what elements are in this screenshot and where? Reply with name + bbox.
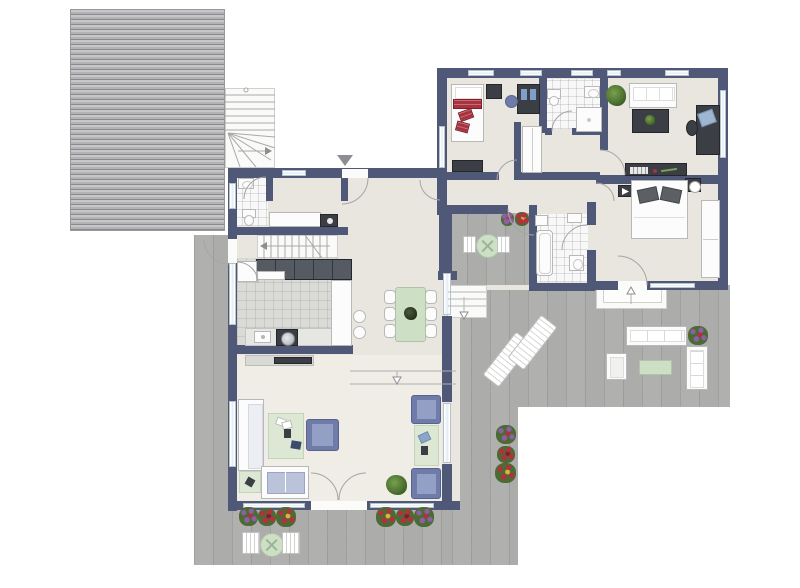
entry-door-opening: [342, 169, 368, 178]
storage-box: [630, 167, 648, 174]
sofa: [238, 399, 264, 471]
counter-peninsula: [331, 280, 352, 346]
floor-plan: [0, 0, 800, 588]
window: [520, 70, 542, 76]
entrance-marker-icon: [337, 155, 353, 166]
toilet-bowl: [244, 215, 254, 226]
flower-pot: [276, 507, 296, 527]
shelf: [486, 84, 502, 99]
window: [571, 70, 593, 76]
window: [443, 403, 451, 463]
rug: [268, 413, 304, 459]
wall: [442, 464, 452, 510]
burner: [327, 218, 333, 224]
outdoor-armchair: [606, 353, 627, 380]
wall: [529, 283, 595, 291]
flower-pot: [396, 508, 414, 526]
bathtub: [536, 230, 553, 276]
window: [229, 183, 236, 209]
window: [443, 273, 451, 315]
wall: [545, 128, 552, 135]
french-door-opening: [311, 501, 367, 510]
sink-basin: [573, 259, 583, 270]
game-box: [290, 440, 301, 450]
ottoman: [239, 471, 261, 493]
window: [665, 70, 689, 76]
window: [468, 70, 494, 76]
toy-figure: [421, 446, 428, 455]
armchair: [306, 419, 339, 451]
bar-stool: [353, 310, 366, 323]
sink: [584, 86, 600, 98]
bistro-chair: [282, 532, 300, 554]
window: [282, 170, 306, 176]
wall: [266, 177, 273, 201]
toy-figure: [284, 429, 291, 438]
lamp: [689, 181, 701, 193]
table-plant: [404, 307, 417, 320]
window: [720, 90, 726, 158]
flower-pot: [688, 326, 708, 345]
wall: [237, 227, 348, 235]
interior-staircase: [257, 235, 338, 258]
bath-shelf: [567, 213, 582, 223]
shower: [576, 107, 602, 132]
wardrobe-divider: [703, 239, 718, 240]
wall: [442, 316, 452, 402]
outdoor-sofa: [686, 346, 708, 390]
wall: [237, 345, 353, 354]
hall-appliance: [320, 214, 338, 227]
sink-basin: [588, 89, 599, 98]
lamp: [622, 188, 629, 195]
bistro-table: [260, 533, 284, 557]
outdoor-sofa: [626, 326, 687, 346]
potted-plant: [606, 85, 626, 106]
hall-counter: [269, 212, 321, 227]
monitor: [530, 89, 536, 100]
bathtub-inner: [539, 233, 551, 274]
wardrobe: [701, 200, 720, 278]
armchair-cushion: [610, 357, 624, 378]
armchair-seat: [312, 424, 333, 446]
bistro-chair: [242, 532, 260, 554]
sofa-seat: [248, 404, 263, 469]
potted-plant: [386, 475, 407, 495]
pot: [281, 332, 295, 346]
porch-inner-step: [603, 288, 662, 303]
bath-shelf: [535, 215, 548, 226]
armchair: [411, 468, 441, 499]
bistro-chair: [463, 236, 476, 253]
sideboard: [452, 160, 483, 172]
bed-blanket: [453, 99, 482, 109]
wall: [442, 230, 452, 272]
sofa-cushions: [630, 330, 685, 342]
sink: [238, 178, 254, 189]
headboard-shelf: [625, 163, 687, 176]
flower-pot: [414, 507, 434, 527]
sofa-cushions: [633, 87, 675, 101]
wall: [228, 168, 440, 178]
faucet: [261, 335, 265, 339]
desk: [517, 84, 540, 114]
terrace-steps: [447, 285, 487, 318]
desk-chair: [505, 95, 518, 108]
bar-stool: [353, 326, 366, 339]
armchair: [411, 395, 441, 424]
outdoor-table: [639, 360, 672, 375]
bed-foot-line: [634, 217, 685, 218]
carport-roof: [70, 9, 225, 231]
window: [439, 126, 445, 168]
wardrobe-divider: [532, 128, 533, 171]
flower-pot: [515, 212, 529, 226]
armchair-seat: [417, 400, 436, 419]
dining-chair: [425, 307, 437, 321]
counter: [237, 261, 257, 282]
tv: [274, 357, 312, 364]
flower-pot: [495, 463, 516, 483]
nightstand: [618, 185, 632, 197]
wall: [442, 205, 452, 233]
flower-pot: [501, 212, 514, 226]
exterior-winder-stair: [225, 88, 275, 168]
flower-pot: [376, 507, 396, 527]
flower-pot: [258, 508, 276, 526]
sink: [569, 255, 584, 271]
loveseat-seat: [267, 472, 305, 494]
window: [229, 401, 236, 467]
dining-chair: [425, 290, 437, 304]
loveseat-divider: [285, 472, 286, 492]
sofa-cushions: [690, 350, 704, 388]
island-sink: [254, 331, 271, 343]
toy-figure: [245, 477, 256, 488]
flower-pot: [239, 507, 258, 526]
flower-pot: [496, 425, 516, 444]
sink-basin: [242, 181, 253, 189]
counter-shelf: [257, 271, 285, 280]
window: [229, 263, 236, 325]
entrance-porch: [596, 287, 667, 309]
window: [650, 283, 695, 288]
dining-chair: [425, 324, 437, 338]
toilet-bowl: [549, 96, 559, 106]
bed-pillow: [455, 87, 482, 99]
wall: [587, 202, 596, 225]
armchair-seat: [417, 474, 436, 494]
wall: [539, 78, 547, 133]
monitor: [521, 89, 527, 100]
shower-drain: [587, 118, 591, 122]
wall: [437, 172, 499, 180]
bistro-chair: [497, 236, 510, 253]
loveseat: [261, 466, 309, 499]
playing-card: [418, 431, 432, 444]
rug: [414, 425, 439, 466]
wardrobe: [522, 126, 542, 173]
decor-dot: [653, 169, 657, 173]
decor-sprig: [661, 168, 677, 172]
sofa: [629, 83, 677, 108]
plant-on-rug: [645, 115, 655, 125]
wall: [517, 172, 600, 180]
flower-pot: [497, 446, 515, 463]
desk-chair: [686, 120, 698, 136]
side-door-opening: [228, 239, 237, 263]
terrace-door-opening: [618, 281, 647, 290]
window: [607, 70, 621, 76]
